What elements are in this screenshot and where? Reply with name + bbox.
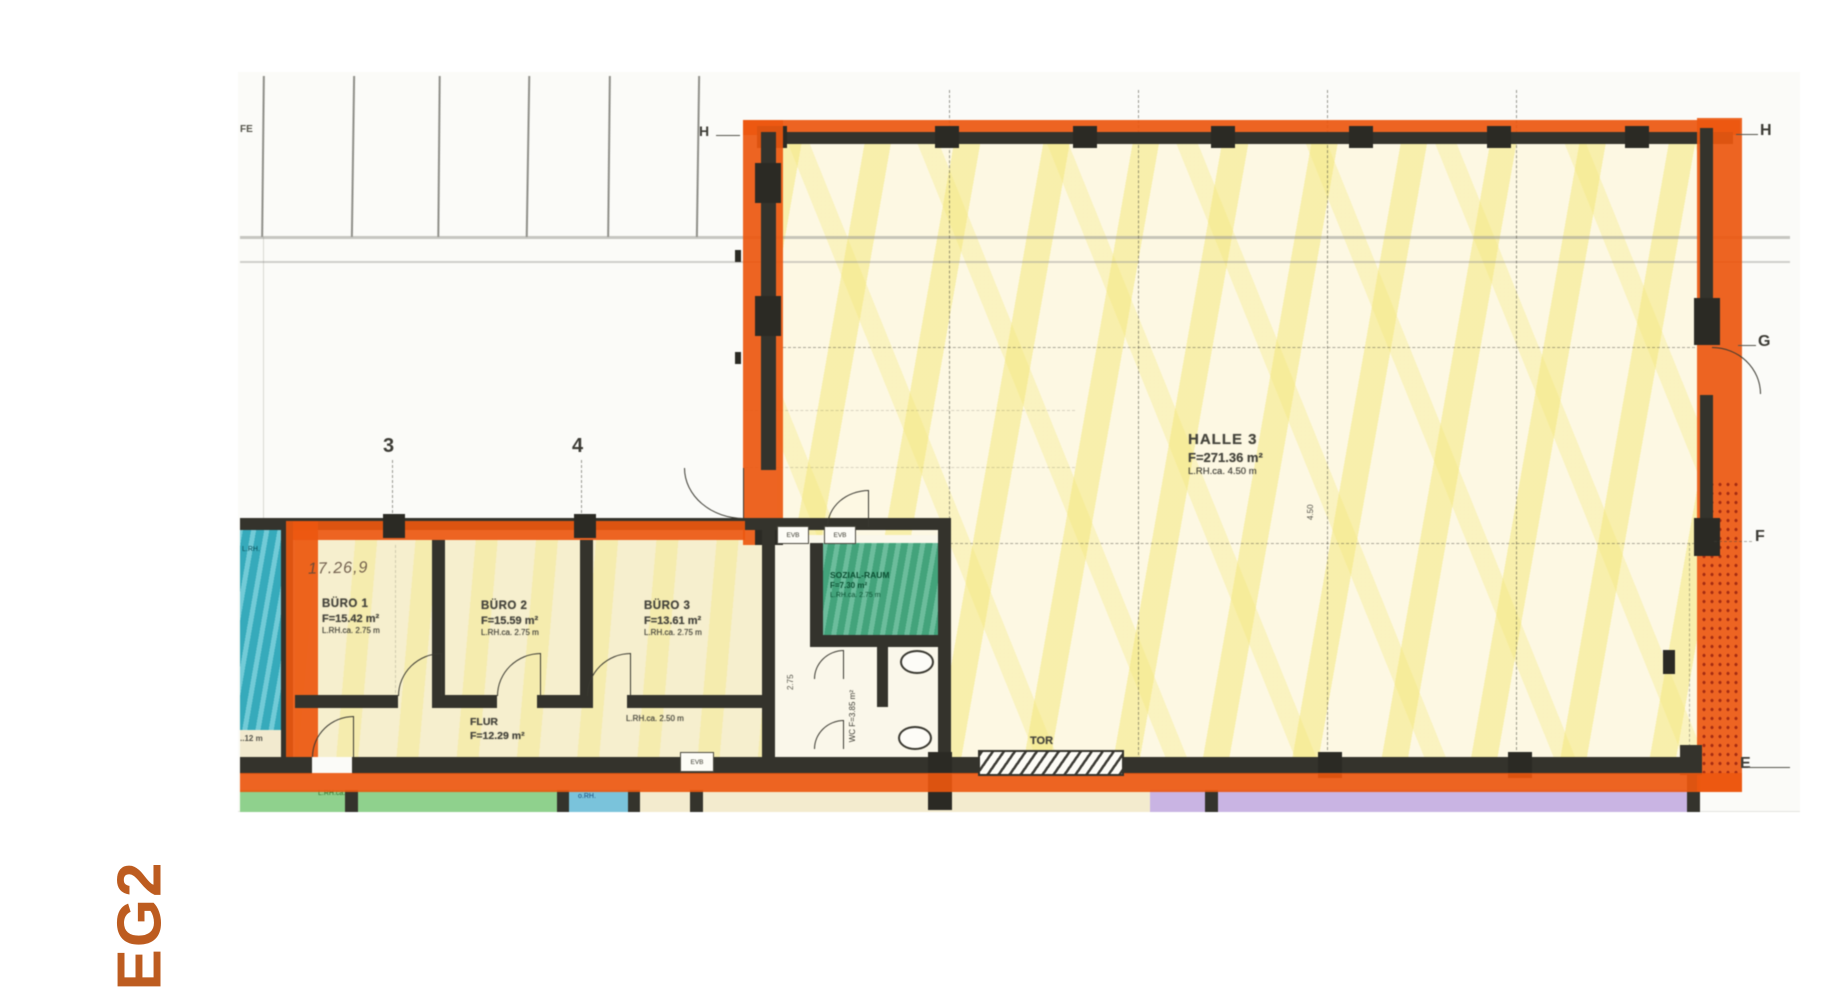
halle3-area: F=271.36 m² — [1188, 450, 1263, 467]
room-label-buero2: BÜRO 2 F=15.59 m² L.RH.ca. 2.75 m — [481, 599, 539, 639]
site-line — [240, 261, 1790, 263]
wall-stub — [557, 790, 569, 812]
grid-label-h: H — [1760, 122, 1772, 140]
grid-dash — [1748, 767, 1790, 768]
gate-label: TOR — [1030, 734, 1053, 748]
sliding-gate — [978, 750, 1124, 776]
grid-label-4: 4 — [572, 435, 583, 458]
wall-bottom — [240, 757, 312, 774]
wall-column — [1349, 126, 1373, 148]
grid-dash — [1736, 134, 1758, 135]
wall-buero-bottom — [295, 695, 398, 708]
grid-line-g — [783, 347, 1695, 348]
halle3-name: HALLE 3 — [1188, 430, 1263, 450]
wall-column — [935, 126, 959, 148]
room-label-halle3: HALLE 3 F=271.36 m² L.RH.ca. 4.50 m — [1188, 430, 1263, 479]
wall-column — [1073, 126, 1097, 148]
wall-stub — [690, 790, 703, 812]
paper-edge-line — [263, 237, 264, 518]
wall-wc-stall — [877, 647, 888, 707]
grid-line-vertical — [1138, 90, 1139, 755]
wall-tick — [735, 250, 741, 262]
grid-line-vertical — [1327, 90, 1328, 755]
wall-tick — [735, 352, 741, 364]
floor-label-wrap: EG2 — [60, 855, 220, 995]
wall-hall-top — [757, 132, 1733, 144]
wall-column — [755, 296, 781, 336]
site-line — [240, 236, 1790, 239]
wall-wc-left — [762, 518, 775, 757]
aux-dashed-line — [745, 410, 1075, 411]
wall-column — [755, 163, 781, 203]
grid-label-g: G — [1758, 333, 1770, 351]
wall-office-top-orange — [288, 521, 745, 540]
halle3-height: L.RH.ca. 4.50 m — [1188, 466, 1263, 478]
wall-column — [1625, 126, 1649, 148]
grid-line-vertical — [1516, 90, 1517, 755]
floorplan-screenshot: FE L.RH.ca. o.RH. — [0, 0, 1835, 1000]
grid-dash — [716, 135, 740, 136]
right-wall-dashed — [1689, 543, 1690, 757]
grid-label-3: 3 — [383, 435, 394, 458]
wall-column — [383, 514, 405, 538]
wall-buero-bottom — [627, 695, 762, 708]
wall-buero-bottom — [537, 695, 587, 708]
wall-column — [1211, 126, 1235, 148]
grid-stub-3-inner — [395, 545, 396, 693]
handwritten-note: 17.26,9 — [308, 559, 369, 579]
grid-label-h-left: H — [699, 123, 709, 139]
wall-wc-right — [938, 518, 951, 757]
toilet-fixture — [898, 726, 932, 750]
wall-column — [574, 514, 596, 538]
wall-sozial-left — [810, 543, 823, 643]
neighbor-strip-lavender — [1150, 790, 1690, 812]
toilet-fixture — [900, 650, 934, 674]
wall-column — [1694, 298, 1720, 345]
floor-label: EG2 — [105, 860, 176, 990]
wall-sozial-bottom — [810, 635, 938, 647]
wall-stub — [345, 790, 358, 812]
wall-mark — [1663, 650, 1675, 674]
room-label-buero3: BÜRO 3 F=13.61 m² L.RH.ca. 2.75 m — [644, 599, 702, 639]
evb-box: EVB — [680, 752, 714, 772]
grid-corner-label: FE — [240, 124, 253, 135]
grid-stub-4 — [581, 460, 582, 518]
aux-dashed-line — [745, 467, 1075, 468]
grid-dash — [1714, 541, 1752, 542]
evb-box: EVB — [777, 526, 809, 544]
room-label-sozialraum: SOZIAL-RAUM F=7.30 m² L.RH.ca. 2.75 m — [830, 570, 890, 601]
wall-bottom — [1120, 757, 1697, 774]
wall-buero-bottom — [440, 695, 497, 708]
wall-bottom — [352, 757, 978, 774]
wall-column — [1487, 126, 1511, 148]
wall-stub — [1205, 790, 1218, 812]
left-cut-label: ..12 m — [240, 734, 263, 743]
cyan-fragment: L.RH. — [242, 546, 260, 553]
flur-height-note: L.RH.ca. 2.50 m — [626, 714, 684, 724]
grid-dash — [1738, 345, 1756, 346]
room-label-flur: FLUR F=12.29 m² — [470, 716, 525, 743]
room-label-buero1: BÜRO 1 F=15.42 m² L.RH.ca. 2.75 m — [322, 597, 380, 637]
grid-label-f: F — [1755, 528, 1765, 546]
grid-stub-3 — [392, 460, 393, 518]
neighbor-strip-beige — [640, 790, 1150, 812]
wall-column — [1694, 518, 1720, 556]
grid-line-f — [950, 543, 1695, 544]
hall-dimension-note: 4.50 — [1306, 405, 1315, 520]
neighbor-text: o.RH. — [578, 793, 596, 800]
neighbor-strip-green — [240, 790, 557, 812]
room-label-wc: WC F=3.85 m² — [848, 690, 857, 742]
wall-office-left-orange — [286, 521, 318, 757]
wall-stub — [628, 790, 640, 812]
evb-box: EVB — [824, 526, 856, 544]
corridor-dimension-note: 2.75 — [786, 598, 795, 690]
scanned-plan: FE L.RH.ca. o.RH. — [0, 0, 1835, 1000]
grid-label-e: E — [1740, 755, 1751, 773]
